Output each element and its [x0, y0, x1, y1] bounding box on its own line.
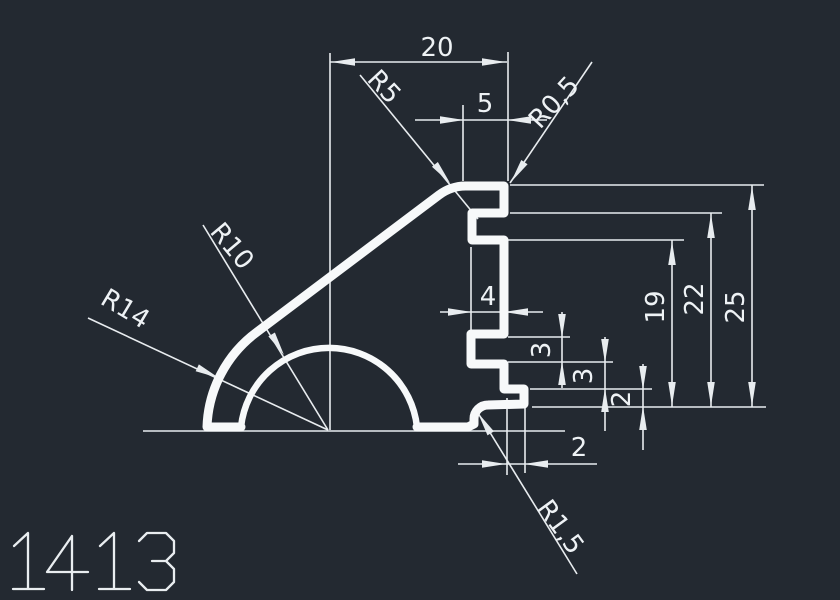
dimension-labels: 20 5 4 2 3 3 2 19 22 25 R5 R0,5 R10 R14 … [95, 33, 751, 560]
dim-label-height-25: 25 [721, 290, 751, 323]
dim-label-height-22: 22 [680, 282, 710, 315]
profile-inner-dome-arc [241, 348, 417, 427]
dim-label-overall-width: 20 [420, 33, 453, 63]
cad-drawing-canvas: 20 5 4 2 3 3 2 19 22 25 R5 R0,5 R10 R14 … [0, 0, 840, 600]
arrowhead-icon [668, 382, 676, 406]
arrowhead-icon [639, 406, 647, 430]
arrowhead-icon [448, 308, 472, 316]
arrowhead-icon [748, 382, 756, 406]
arrowhead-icon [748, 186, 756, 210]
dim-label-top-face: 5 [477, 89, 494, 119]
arrowhead-icon [478, 413, 494, 435]
arrowhead-icon [482, 58, 506, 66]
dim-label-height-19: 19 [641, 290, 671, 323]
arrowhead-icon [268, 332, 284, 355]
radius-label-r5: R5 [361, 64, 407, 110]
arrowhead-icon [482, 460, 506, 468]
radius-label-r10: R10 [204, 217, 260, 275]
arrowhead-icon [331, 58, 355, 66]
arrowhead-icon [668, 241, 676, 265]
radius-label-r14: R14 [95, 283, 154, 335]
dim-label-groove-depth: 4 [480, 282, 497, 312]
part-number [13, 533, 174, 590]
cad-viewport: 1413 [0, 0, 840, 600]
dim-label-spacing-lower: 3 [569, 368, 599, 385]
part-number-glyph-4 [47, 536, 88, 590]
radius-label-r05: R0,5 [523, 71, 585, 135]
arrowhead-icon [558, 314, 566, 338]
dim-label-spacing-upper: 3 [527, 342, 557, 359]
dim-label-lip-width: 2 [571, 433, 588, 463]
arrowhead-icon [601, 339, 609, 363]
radius-label-r15: R1,5 [530, 494, 589, 560]
arrowhead-icon [639, 366, 647, 390]
arrowhead-icon [558, 361, 566, 385]
arrowhead-icon [511, 160, 528, 182]
part-number-glyph-1b [99, 533, 130, 589]
part-number-glyph-1a [13, 533, 44, 589]
dim-label-lip-height: 2 [607, 391, 637, 408]
arrowhead-icon [707, 214, 715, 238]
arrowhead-icon [707, 382, 715, 406]
arrowhead-icon [440, 116, 464, 124]
part-number-glyph-3 [139, 533, 174, 590]
arrowhead-icon [524, 460, 548, 468]
arrowhead-icon [432, 162, 450, 183]
